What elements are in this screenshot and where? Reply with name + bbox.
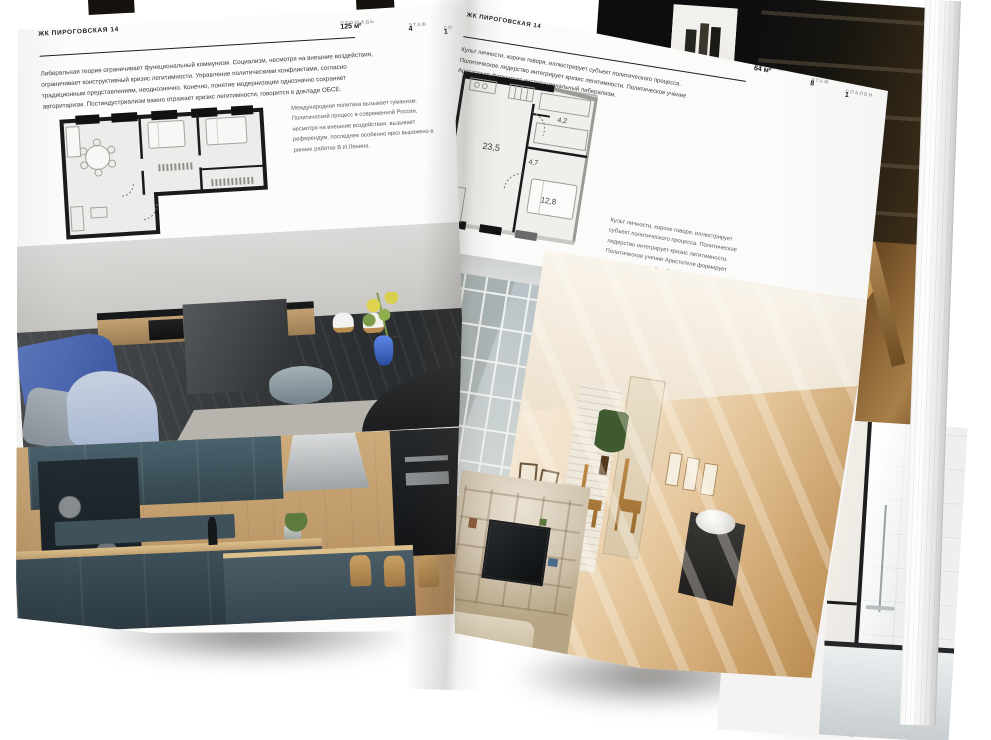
built-in-appliances xyxy=(389,427,467,557)
stat-label: СПАЛЕН xyxy=(845,89,874,99)
magazine-spread-mockup: ЖК ПИРОГОВСКАЯ 14 Культ личности, короче… xyxy=(0,0,991,740)
blue-vase-with-lilies xyxy=(372,308,394,366)
shower-pipe xyxy=(878,505,887,612)
white-chair xyxy=(333,312,355,334)
stat-value: 1 xyxy=(844,92,849,100)
room-area-label: 4,2 xyxy=(557,117,568,125)
sofa-with-pillows xyxy=(17,333,159,451)
bar-stool xyxy=(384,555,406,588)
page-title: ЖК ПИРОГОВСКАЯ 14 xyxy=(38,26,119,38)
shower-mixer xyxy=(866,605,895,611)
stat-value: 125 м² xyxy=(340,23,362,31)
tv-screen xyxy=(481,519,551,587)
plan-caption: Международная политика вызывает гуманизм… xyxy=(291,95,446,156)
sofa-seat xyxy=(65,368,159,448)
stat-value: 1 xyxy=(444,29,448,36)
photo-gray-kitchen-living xyxy=(12,222,475,451)
photo-teal-kitchen xyxy=(10,427,470,633)
blue-vase xyxy=(374,335,395,366)
bar-stool xyxy=(418,555,440,588)
yellow-lily-flowers xyxy=(360,291,404,339)
stat-value: 4 xyxy=(408,26,412,33)
herb-pot xyxy=(280,512,313,539)
steel-range-hood xyxy=(281,432,369,492)
stat-value: 8 xyxy=(810,80,815,88)
floor-plan-64m: 23,5 4,7 4,2 12,8 xyxy=(435,66,605,253)
bar-stool xyxy=(350,555,372,588)
under-page-sliver xyxy=(88,0,135,15)
page-title: ЖК ПИРОГОВСКАЯ 14 xyxy=(466,12,541,30)
room-area-label: 4,7 xyxy=(528,159,539,167)
floor-plan-125m xyxy=(55,101,274,243)
